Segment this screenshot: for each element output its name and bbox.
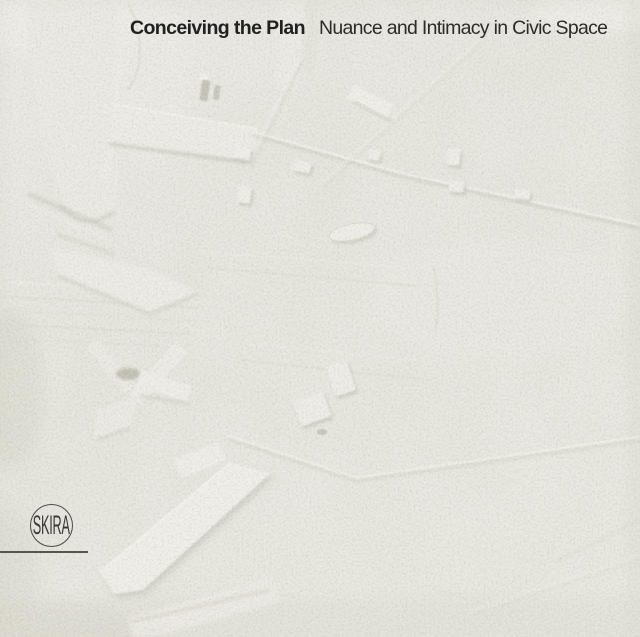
- book-cover: Conceiving the Plan Nuance and Intimacy …: [0, 0, 640, 637]
- plaster-relief-artwork: [0, 0, 640, 637]
- skira-publisher-logo: SKIRA: [30, 504, 73, 547]
- book-subtitle: Nuance and Intimacy in Civic Space: [319, 17, 607, 39]
- relief-grain: [0, 0, 640, 637]
- skira-logo-text: SKIRA: [33, 512, 70, 540]
- book-title: Conceiving the Plan: [130, 17, 305, 39]
- logo-rule: [0, 551, 88, 553]
- title-bar: Conceiving the Plan Nuance and Intimacy …: [130, 17, 607, 39]
